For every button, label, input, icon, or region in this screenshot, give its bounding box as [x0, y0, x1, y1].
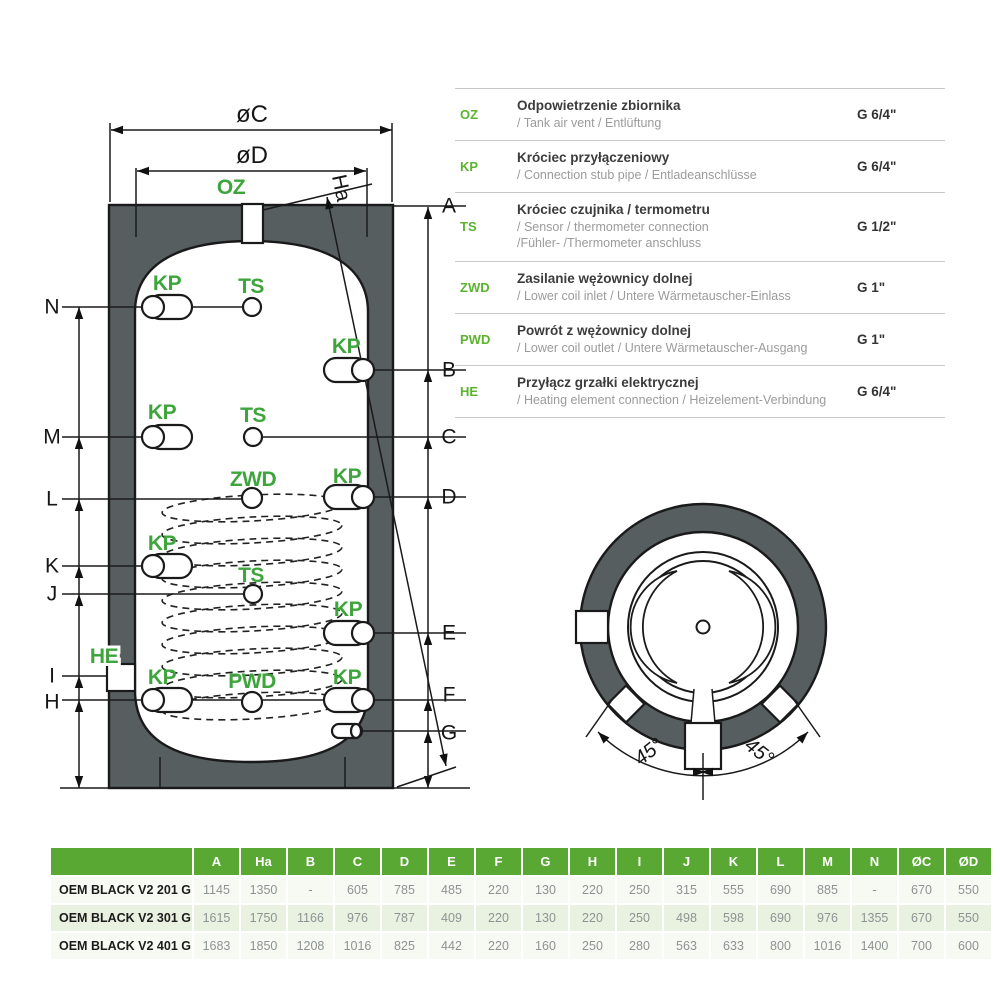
port-label-kp-n: KP — [153, 272, 182, 295]
legend-size: G 6/4" — [857, 159, 945, 174]
cell: 220 — [570, 877, 615, 903]
legend-title: Króciec przyłączeniowy — [517, 150, 857, 167]
cell: 485 — [429, 877, 474, 903]
cell: - — [852, 877, 897, 903]
cell: 250 — [617, 877, 662, 903]
port-label-ts-c: TS — [240, 404, 266, 427]
legend-abbr: HE — [455, 384, 517, 399]
legend-abbr: OZ — [455, 107, 517, 122]
port-label-ts-j: TS — [238, 564, 264, 587]
ts-connector-j — [244, 585, 262, 603]
dim-letter-d: D — [441, 486, 456, 509]
col-header: ØD — [946, 848, 991, 875]
cell: 442 — [429, 933, 474, 959]
col-header: G — [523, 848, 568, 875]
legend-subtitle: / Lower coil outlet / Untere Wärmetausch… — [517, 340, 857, 356]
cell: 700 — [899, 933, 944, 959]
cell: 220 — [476, 905, 521, 931]
cell: 1350 — [241, 877, 286, 903]
cell: 550 — [946, 877, 991, 903]
legend-title: Odpowietrzenie zbiornika — [517, 98, 857, 115]
port-label-kp-m: KP — [148, 401, 177, 424]
port-label-kp-h: KP — [148, 666, 177, 689]
cell: 885 — [805, 877, 850, 903]
dim-letter-j: J — [47, 583, 58, 606]
col-header: J — [664, 848, 709, 875]
dim-letter-h: H — [44, 691, 59, 714]
port-label-ts-n: TS — [238, 275, 264, 298]
legend-abbr: ZWD — [455, 280, 517, 295]
cell: 633 — [711, 933, 756, 959]
cell: 605 — [335, 877, 380, 903]
cell: 1355 — [852, 905, 897, 931]
table-row-401g: OEM BLACK V2 401 G 1683 1850 1208 1016 8… — [51, 933, 991, 959]
cell: 670 — [899, 877, 944, 903]
cell: 800 — [758, 933, 803, 959]
dim-letter-l: L — [46, 488, 58, 511]
legend-row-kp: KP Króciec przyłączeniowy / Connection s… — [455, 140, 945, 192]
cell: 1145 — [194, 877, 239, 903]
port-label-kp-d: KP — [333, 465, 362, 488]
cell: 1016 — [805, 933, 850, 959]
kp-connector-m — [142, 425, 192, 449]
cell: 563 — [664, 933, 709, 959]
legend-title: Przyłącz grzałki elektrycznej — [517, 375, 857, 392]
cell: 690 — [758, 905, 803, 931]
legend-abbr: TS — [455, 219, 517, 234]
kp-connector-k — [142, 554, 192, 578]
kp-connector-h — [142, 688, 192, 712]
col-header: L — [758, 848, 803, 875]
kp-connector-b — [324, 358, 374, 382]
legend-size: G 1/2" — [857, 219, 945, 234]
col-header: Ha — [241, 848, 286, 875]
ts-connector-c — [244, 428, 262, 446]
he-port-notch — [107, 664, 135, 691]
ts-connector-n — [243, 298, 261, 316]
dim-letter-a: A — [442, 195, 456, 218]
col-header: B — [288, 848, 333, 875]
dim-letter-n: N — [44, 296, 59, 319]
col-header: E — [429, 848, 474, 875]
legend-title: Powrót z wężownicy dolnej — [517, 323, 857, 340]
cell: 690 — [758, 877, 803, 903]
col-header: F — [476, 848, 521, 875]
legend-row-he: HE Przyłącz grzałki elektrycznej / Heati… — [455, 365, 945, 418]
cell: 409 — [429, 905, 474, 931]
port-label-kp-b: KP — [332, 335, 361, 358]
legend-subtitle: / Sensor / thermometer connection /Fühle… — [517, 219, 857, 252]
col-header: H — [570, 848, 615, 875]
cell: 220 — [476, 933, 521, 959]
left-dimension-chain — [75, 307, 83, 788]
port-label-pwd: PWD — [228, 670, 276, 693]
kp-connector-f — [324, 688, 374, 712]
model-name: OEM BLACK V2 301 G — [51, 905, 192, 931]
cell: 250 — [570, 933, 615, 959]
col-header: K — [711, 848, 756, 875]
col-header: N — [852, 848, 897, 875]
legend-row-oz: OZ Odpowietrzenie zbiornika / Tank air v… — [455, 88, 945, 140]
legend-size: G 1" — [857, 332, 945, 347]
col-header: I — [617, 848, 662, 875]
cell: 1750 — [241, 905, 286, 931]
cell: 1683 — [194, 933, 239, 959]
dim-letter-ha: Ha — [327, 172, 355, 203]
table-row-301g: OEM BLACK V2 301 G 1615 1750 1166 976 78… — [51, 905, 991, 931]
cell: - — [288, 877, 333, 903]
cell: 670 — [899, 905, 944, 931]
dim-letter-i: I — [49, 665, 55, 688]
table-header-model — [51, 848, 192, 875]
cell: 825 — [382, 933, 427, 959]
legend-abbr: PWD — [455, 332, 517, 347]
legend-title: Króciec czujnika / termometru — [517, 202, 857, 219]
port-label-kp-f: KP — [333, 666, 362, 689]
col-header: A — [194, 848, 239, 875]
dim-letter-f: F — [443, 684, 456, 707]
col-header: M — [805, 848, 850, 875]
cell: 498 — [664, 905, 709, 931]
dimensions-table: A Ha B C D E F G H I J K L M N ØC ØD — [49, 846, 993, 961]
legend-size: G 6/4" — [857, 107, 945, 122]
cell: 220 — [476, 877, 521, 903]
cell: 1166 — [288, 905, 333, 931]
dim-letter-b: B — [442, 359, 456, 382]
cell: 598 — [711, 905, 756, 931]
cell: 315 — [664, 877, 709, 903]
port-label-he: HE — [90, 645, 119, 668]
table-header-row: A Ha B C D E F G H I J K L M N ØC ØD — [51, 848, 991, 875]
cell: 1400 — [852, 933, 897, 959]
port-label-zwd: ZWD — [230, 468, 277, 491]
legend-size: G 6/4" — [857, 384, 945, 399]
cell: 1208 — [288, 933, 333, 959]
cell: 555 — [711, 877, 756, 903]
topview-left-notch — [576, 611, 608, 643]
port-label-kp-k: KP — [148, 532, 177, 555]
kp-connector-d — [324, 485, 374, 509]
dim-letter-c: C — [441, 426, 456, 449]
col-header: D — [382, 848, 427, 875]
model-name: OEM BLACK V2 401 G — [51, 933, 192, 959]
dim-letter-g: G — [441, 722, 457, 745]
tank-cross-section-drawing: OZ KP TS KP KP TS ZWD KP KP TS KP HE KP … — [0, 85, 500, 815]
legend-row-zwd: ZWD Zasilanie wężownicy dolnej / Lower c… — [455, 261, 945, 313]
cell: 1016 — [335, 933, 380, 959]
col-header: ØC — [899, 848, 944, 875]
legend-row-ts: TS Króciec czujnika / termometru / Senso… — [455, 192, 945, 260]
cell: 160 — [523, 933, 568, 959]
cell: 280 — [617, 933, 662, 959]
dim-letter-m: M — [43, 426, 61, 449]
legend-subtitle: / Connection stub pipe / Entladeanschlüs… — [517, 167, 857, 183]
legend-subtitle: / Heating element connection / Heizeleme… — [517, 392, 857, 408]
cell: 250 — [617, 905, 662, 931]
legend-title: Zasilanie wężownicy dolnej — [517, 271, 857, 288]
port-label-kp-e: KP — [334, 598, 363, 621]
cell: 130 — [523, 905, 568, 931]
cell: 976 — [805, 905, 850, 931]
dim-letter-e: E — [442, 622, 456, 645]
pwd-connector — [242, 692, 262, 712]
port-label-oz: OZ — [217, 176, 246, 199]
cell: 600 — [946, 933, 991, 959]
cell: 1850 — [241, 933, 286, 959]
topview-bottom-funnel — [691, 688, 715, 723]
cell: 130 — [523, 877, 568, 903]
cell: 220 — [570, 905, 615, 931]
legend-subtitle: / Tank air vent / Entlüftung — [517, 115, 857, 131]
legend-row-pwd: PWD Powrót z wężownicy dolnej / Lower co… — [455, 313, 945, 365]
legend-size: G 1" — [857, 280, 945, 295]
cell: 976 — [335, 905, 380, 931]
cell: 787 — [382, 905, 427, 931]
tank-top-view-drawing: 45° 45° — [540, 465, 970, 820]
ports-legend: OZ Odpowietrzenie zbiornika / Tank air v… — [455, 88, 945, 418]
cell: 785 — [382, 877, 427, 903]
model-name: OEM BLACK V2 201 G — [51, 877, 192, 903]
dim-letter-od: øD — [236, 142, 268, 169]
legend-abbr: KP — [455, 159, 517, 174]
dim-letter-k: K — [45, 555, 59, 578]
g-connector — [332, 724, 362, 738]
spec-sheet-page: OZ KP TS KP KP TS ZWD KP KP TS KP HE KP … — [0, 0, 1000, 1000]
topview-center-port — [697, 621, 710, 634]
table-row-201g: OEM BLACK V2 201 G 1145 1350 - 605 785 4… — [51, 877, 991, 903]
oz-port-notch — [242, 204, 263, 243]
kp-connector-n — [142, 295, 192, 319]
zwd-connector — [242, 488, 262, 508]
legend-subtitle: / Lower coil inlet / Untere Wärmetausche… — [517, 288, 857, 304]
cell: 550 — [946, 905, 991, 931]
kp-connector-e — [324, 621, 374, 645]
cell: 1615 — [194, 905, 239, 931]
col-header: C — [335, 848, 380, 875]
dim-letter-oc: øC — [236, 101, 268, 128]
